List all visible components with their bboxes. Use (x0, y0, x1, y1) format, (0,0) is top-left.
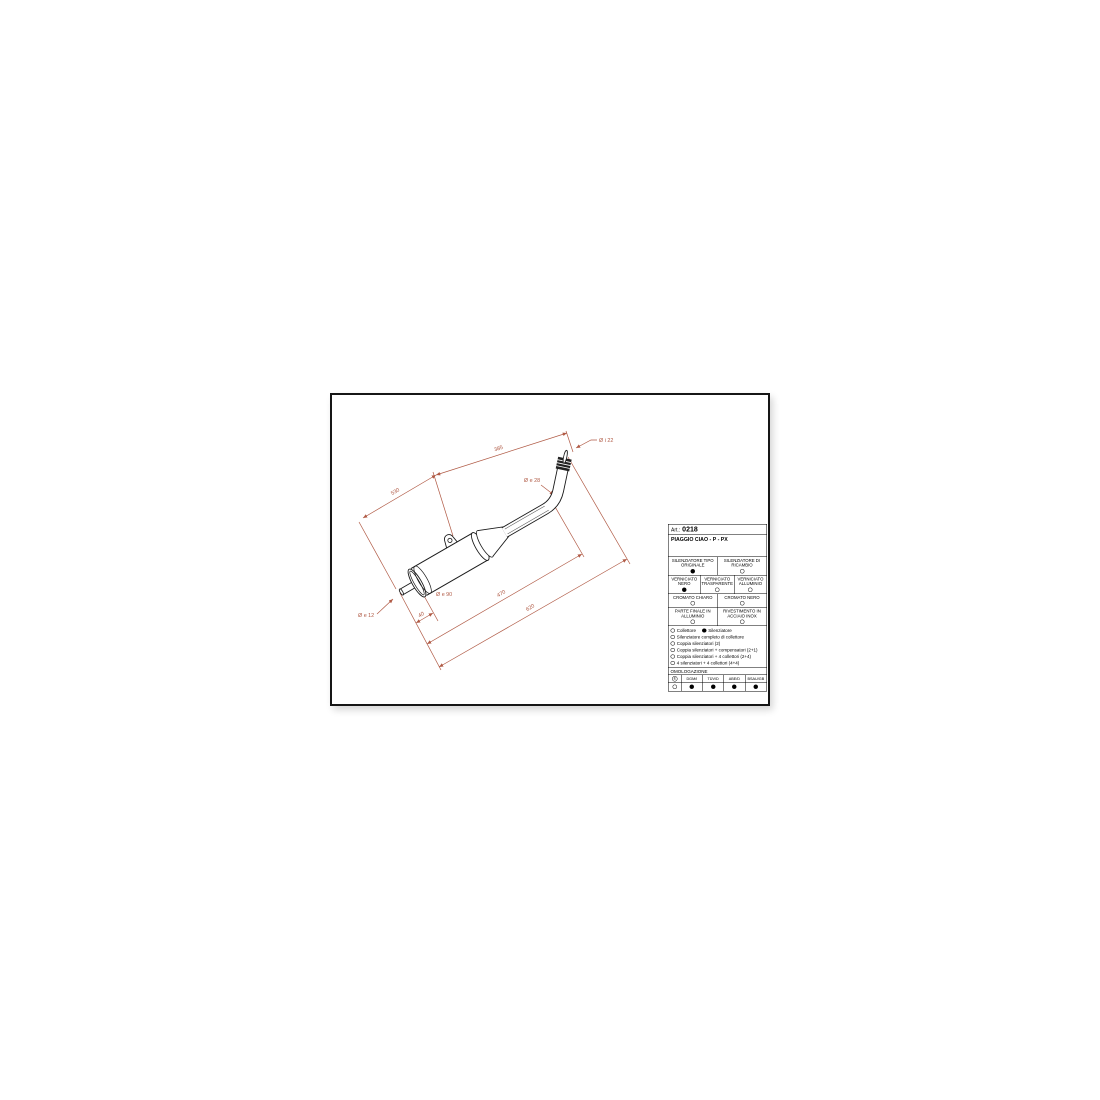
option-silenziatore-originale: SILENZIATORE TIPO ORIGINALE (669, 557, 718, 575)
extension-line (568, 457, 630, 564)
dim-620-line (439, 559, 627, 667)
extension-line (554, 505, 584, 557)
option-dot (682, 587, 687, 592)
checkbox (671, 654, 675, 658)
checklist-label: Silenziatore (708, 628, 732, 633)
article-label: Art.: (671, 528, 680, 534)
configuration-checklist: Collettore Silenziatore Silenziatore com… (669, 626, 767, 668)
leader-tail-diameter (377, 599, 393, 614)
article-number: 0218 (682, 525, 698, 533)
option-row: SILENZIATORE TIPO ORIGINALE SILENZIATORE… (669, 557, 767, 575)
option-row: VERNICIATO NERO VERNICIATO TRASPARENTE V… (669, 575, 767, 593)
dim-470-label: 470 (496, 589, 507, 599)
checklist-line: Coppia silenziatori (2) (671, 641, 765, 646)
homologation-col-e: E (669, 675, 682, 691)
option-dot (740, 601, 745, 606)
dim-385-label: 385 (493, 445, 503, 453)
checkbox (671, 661, 675, 665)
option-dot (740, 569, 745, 574)
option-dot (740, 620, 745, 625)
checklist-label: Collettore (677, 628, 696, 633)
checklist-line: Collettore Silenziatore (671, 628, 765, 633)
homologation-col-dgm: DGM/I (682, 675, 703, 691)
checklist-line: Coppia silenziatori + compensatori (2+1) (671, 648, 765, 653)
extension-line (400, 593, 441, 670)
extension-line (359, 522, 396, 589)
option-row: PARTE FINALE IN ALLUMINIO RIVESTIMENTO I… (669, 608, 767, 626)
extension-line (566, 431, 573, 452)
checkbox (671, 641, 675, 645)
checkbox (702, 628, 706, 632)
part-info-table: Art.: 0218 PIAGGIO CIAO - P - PX SILENZI… (668, 524, 767, 692)
option-cromato-nero: CROMATO NERO (718, 594, 767, 607)
option-label: VERNICIATO NERO (670, 577, 700, 586)
inlet-diameter-label: Ø i 22 (599, 438, 613, 444)
homologation-col-bsau: BSAU/GB (745, 675, 766, 691)
leader-inlet-diameter (576, 440, 597, 448)
option-label: SILENZIATORE TIPO ORIGINALE (670, 559, 717, 568)
checklist-label: Coppia silenziatori + 4 collettori (2+4) (677, 654, 751, 659)
checklist-line: Coppia silenziatori + 4 collettori (2+4) (671, 654, 765, 659)
checkbox (671, 648, 675, 652)
option-label: CROMATO NERO (724, 595, 759, 600)
homologation-label: BSAU/GB (745, 675, 766, 683)
pipe-diameter-label: Ø e 28 (524, 478, 540, 484)
option-dot (691, 569, 696, 574)
checklist-label: Coppia silenziatori + compensatori (2+1) (677, 648, 758, 653)
option-label: VERNICIATO TRASPARENTE (702, 577, 733, 586)
dim-385-line (436, 433, 567, 475)
option-dot (691, 601, 696, 606)
homologation-col-tuv: TÜV/D (703, 675, 724, 691)
homologation-dot (690, 685, 695, 690)
checklist-line: Silenziatore completo di collettore (671, 635, 765, 640)
circled-e: E (672, 676, 678, 682)
homologation-grid: E DGM/I TÜV/D ABE/D BSAU/GB (669, 675, 767, 692)
option-label: RIVESTIMENTO IN ACCIAIO INOX (719, 609, 766, 618)
option-dot (691, 620, 696, 625)
homologation-dot (711, 685, 716, 690)
option-rivestimento-inox: RIVESTIMENTO IN ACCIAIO INOX (718, 608, 767, 626)
option-dot (715, 587, 720, 592)
dim-530-label: 530 (390, 487, 401, 497)
option-dot (748, 587, 753, 592)
option-row: CROMATO CHIARO CROMATO NERO (669, 594, 767, 608)
homologation-label: ABE/D (724, 675, 745, 683)
technical-sheet: 530 385 Ø i 22 Ø e 28 Ø e 90 Ø e 12 40 4… (330, 393, 770, 706)
homologation-dot (732, 685, 737, 690)
option-label: VERNICIATO ALLUMINIO (735, 577, 765, 586)
model-name: PIAGGIO CIAO - P - PX (669, 535, 767, 557)
option-silenziatore-ricambio: SILENZIATORE DI RICAMBIO (718, 557, 767, 575)
muffler-drawing (380, 449, 596, 607)
option-label: PARTE FINALE IN ALLUMINIO (670, 609, 717, 618)
option-verniciato-nero: VERNICIATO NERO (669, 575, 701, 593)
checkbox (671, 635, 675, 639)
checklist-label: 4 silenziatori + 4 collettori (4+4) (677, 661, 740, 666)
article-row: Art.: 0218 (669, 525, 767, 536)
homologation-dot (754, 685, 759, 690)
checklist-label: Silenziatore completo di collettore (677, 635, 744, 640)
homologation-dot (673, 685, 678, 690)
homologation-label: TÜV/D (703, 675, 724, 683)
checklist-line: 4 silenziatori + 4 collettori (4+4) (671, 661, 765, 666)
dim-620-label: 620 (525, 603, 536, 613)
extension-line (433, 472, 453, 536)
option-cromato-chiaro: CROMATO CHIARO (669, 594, 718, 607)
homologation-label: DGM/I (682, 675, 703, 683)
checkbox (671, 628, 675, 632)
option-verniciato-alluminio: VERNICIATO ALLUMINIO (734, 575, 766, 593)
option-label: CROMATO CHIARO (673, 595, 712, 600)
option-verniciato-trasparente: VERNICIATO TRASPARENTE (701, 575, 735, 593)
tail-diameter-label: Ø e 12 (358, 613, 374, 619)
dim-530-line (363, 475, 436, 518)
option-label: SILENZIATORE DI RICAMBIO (719, 559, 766, 568)
homologation-col-abe: ABE/D (724, 675, 745, 691)
checklist-label: Coppia silenziatori (2) (677, 641, 721, 646)
body-diameter-label: Ø e 90 (436, 592, 452, 598)
option-parte-finale-alluminio: PARTE FINALE IN ALLUMINIO (669, 608, 718, 626)
